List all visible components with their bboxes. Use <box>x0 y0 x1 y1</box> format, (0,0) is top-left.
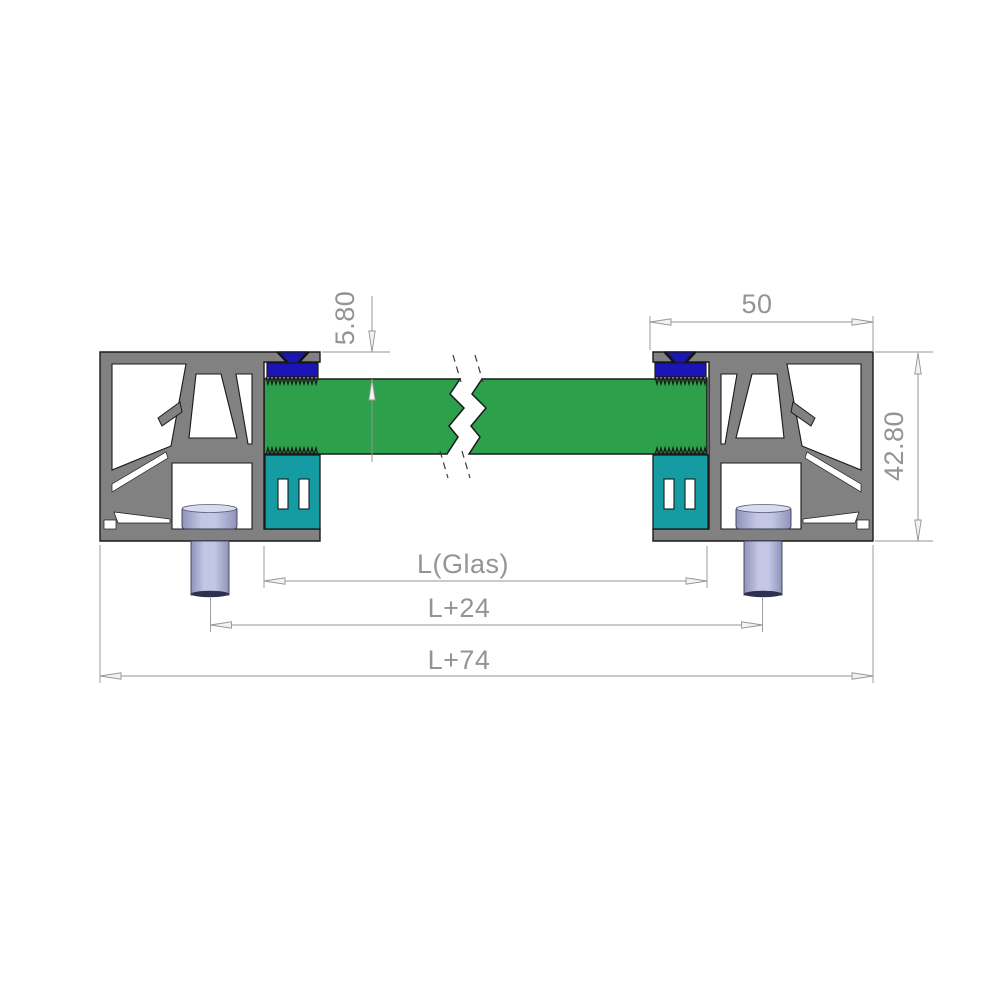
dimension-42-80: 42.80 <box>875 352 933 541</box>
dimension-label-l-glas: L(Glas) <box>417 549 509 579</box>
dimension-label-5-80: 5.80 <box>330 291 360 346</box>
glazing-block-slot <box>278 479 288 509</box>
bolt-shaft <box>191 541 229 595</box>
glazing-block-body <box>265 455 320 529</box>
fastening-bolt <box>182 505 237 598</box>
dimension-label-50: 50 <box>741 289 772 319</box>
bolt-head-top <box>183 505 237 513</box>
gasket-body <box>267 363 318 377</box>
dimension-l-glas: L(Glas) <box>264 546 707 588</box>
dimension-label-42-80: 42.80 <box>879 411 909 481</box>
dimension-label-l-plus-74: L+74 <box>428 645 491 675</box>
dimension-50: 50 <box>650 289 873 352</box>
dimension-l-plus-24: L+24 <box>211 593 763 632</box>
glass-panel-right <box>469 379 707 454</box>
bolt-shaft-end <box>191 591 229 597</box>
glazing-block-slot <box>299 479 309 509</box>
glass-panel <box>264 355 707 478</box>
glass-panel-left <box>264 379 464 454</box>
profile-notch-bottom-left <box>104 520 116 529</box>
dimension-label-l-plus-24: L+24 <box>428 593 491 623</box>
cad-drawing-canvas: 5.80 50 42.80 L(Glas) <box>0 0 1000 1000</box>
glazing-block <box>265 455 320 529</box>
